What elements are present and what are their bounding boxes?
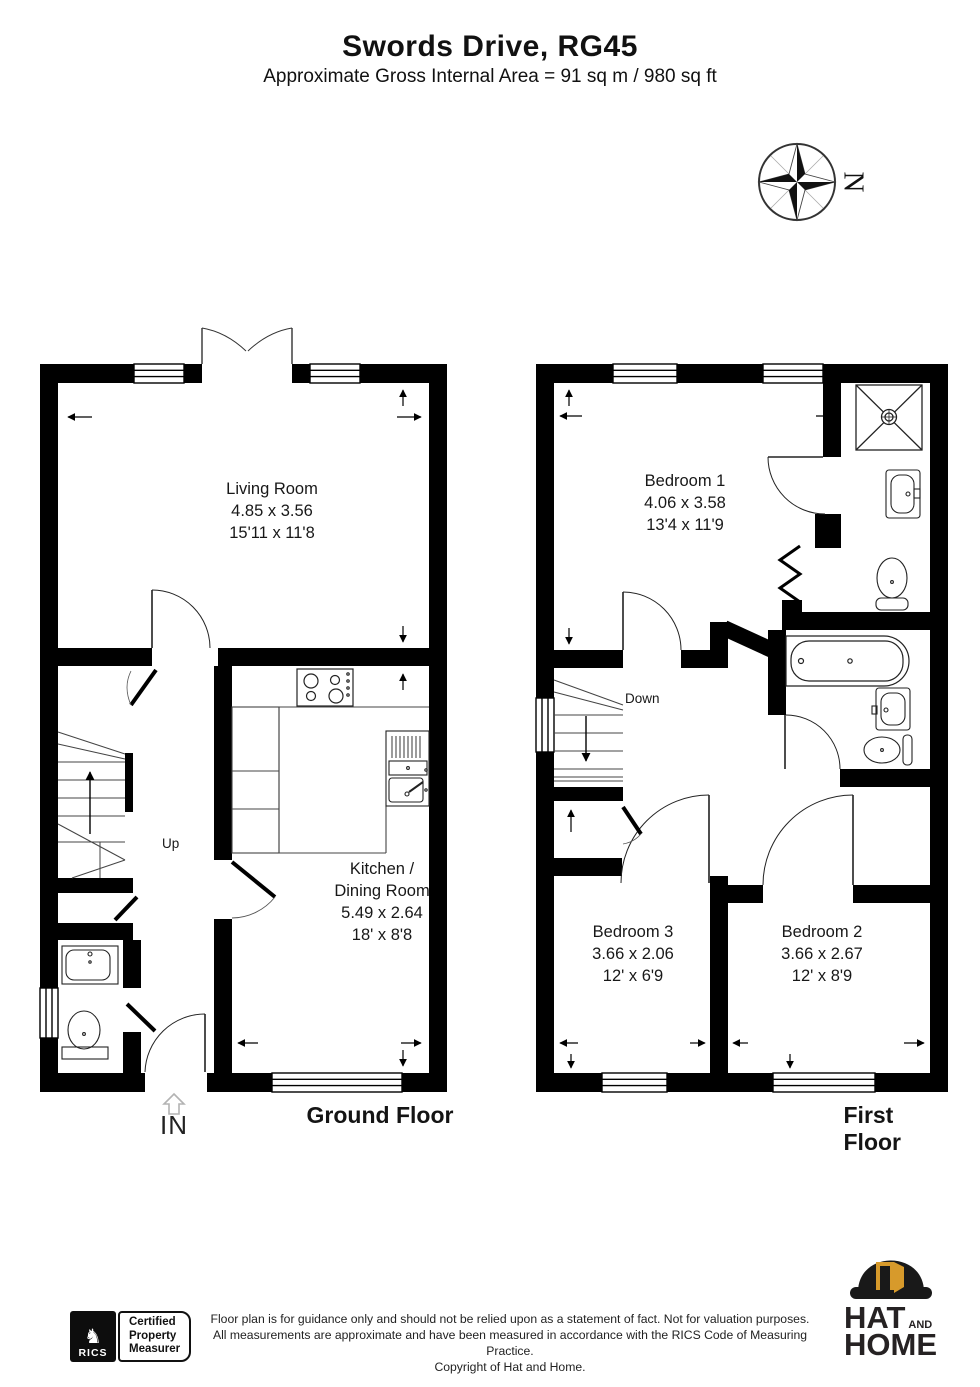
landing-cupboard-door — [623, 807, 641, 844]
bowler-hat-icon — [850, 1242, 932, 1302]
kitchen-dining-label: Kitchen / Dining Room 5.49 x 2.64 18' x … — [334, 858, 429, 946]
bathroom-door — [785, 715, 840, 769]
bedroom2-label: Bedroom 2 3.66 x 2.67 12' x 8'9 — [781, 921, 863, 987]
ground-walls — [40, 364, 447, 1092]
patio-door-opening — [202, 363, 292, 384]
hob-icon — [297, 669, 353, 706]
ensuite-sink-icon — [886, 470, 920, 518]
first-floor-plan — [520, 320, 960, 1150]
stairs-up-label: Up — [162, 836, 179, 851]
bathroom-sink-icon — [872, 688, 910, 730]
ground-floor-title: Ground Floor — [307, 1102, 454, 1129]
rics-certification-badge: ♞ RICS Certified Property Measurer — [70, 1311, 191, 1362]
wc-door — [127, 1004, 155, 1031]
rics-logo: ♞ RICS — [70, 1311, 116, 1362]
ensuite-door — [768, 457, 825, 514]
disclaimer-text: Floor plan is for guidance only and shou… — [195, 1311, 825, 1375]
bedroom2-door — [763, 795, 853, 885]
bathroom-toilet-icon — [864, 735, 912, 765]
page-subtitle: Approximate Gross Internal Area = 91 sq … — [0, 66, 980, 88]
compass-north-label: N — [837, 172, 869, 193]
kitchen-sink-icon — [386, 731, 429, 806]
certified-property-measurer-box: Certified Property Measurer — [118, 1311, 191, 1362]
living-room-door — [152, 590, 210, 648]
rics-wordmark: RICS — [78, 1347, 107, 1359]
bedroom1-door — [623, 592, 681, 650]
kitchen-door — [232, 862, 275, 918]
wc-toilet-icon — [62, 1011, 108, 1059]
stairs-up-icon — [58, 732, 125, 878]
shower-icon — [856, 385, 922, 450]
stairs-down-label: Down — [625, 691, 660, 706]
first-floor-title: First Floor — [844, 1102, 935, 1156]
angled-wall — [724, 628, 772, 650]
page-title: Swords Drive, RG45 — [0, 30, 980, 64]
entrance-door — [145, 1014, 205, 1072]
ensuite-toilet-icon — [876, 558, 908, 610]
bath-icon — [786, 636, 909, 686]
living-room-label: Living Room 4.85 x 3.56 15'11 x 11'8 — [226, 478, 318, 544]
compass-rose-icon: N — [750, 135, 885, 235]
bedroom3-door — [621, 795, 709, 883]
hat-and-home-wordmark: HAT AND HOME — [844, 1304, 978, 1358]
hall-door — [127, 670, 156, 705]
entrance-opening — [145, 1072, 207, 1093]
cupboard-door — [115, 897, 137, 920]
stairs-down-icon — [554, 680, 623, 781]
ground-floor-plan — [30, 320, 460, 1150]
bedroom3-label: Bedroom 3 3.66 x 2.06 12' x 6'9 — [592, 921, 674, 987]
french-doors — [202, 328, 292, 364]
entrance-in-label: IN — [160, 1110, 188, 1141]
hat-and-home-logo: HAT AND HOME — [828, 1242, 978, 1358]
wardrobe-bifold-doors — [780, 546, 800, 602]
bedroom1-label: Bedroom 1 4.06 x 3.58 13'4 x 11'9 — [644, 470, 726, 536]
kitchen-counter — [232, 707, 429, 853]
rics-lion-icon: ♞ — [84, 1327, 102, 1347]
wc-sink-icon — [62, 946, 118, 984]
floorplan-page: Swords Drive, RG45 Approximate Gross Int… — [0, 0, 980, 1387]
